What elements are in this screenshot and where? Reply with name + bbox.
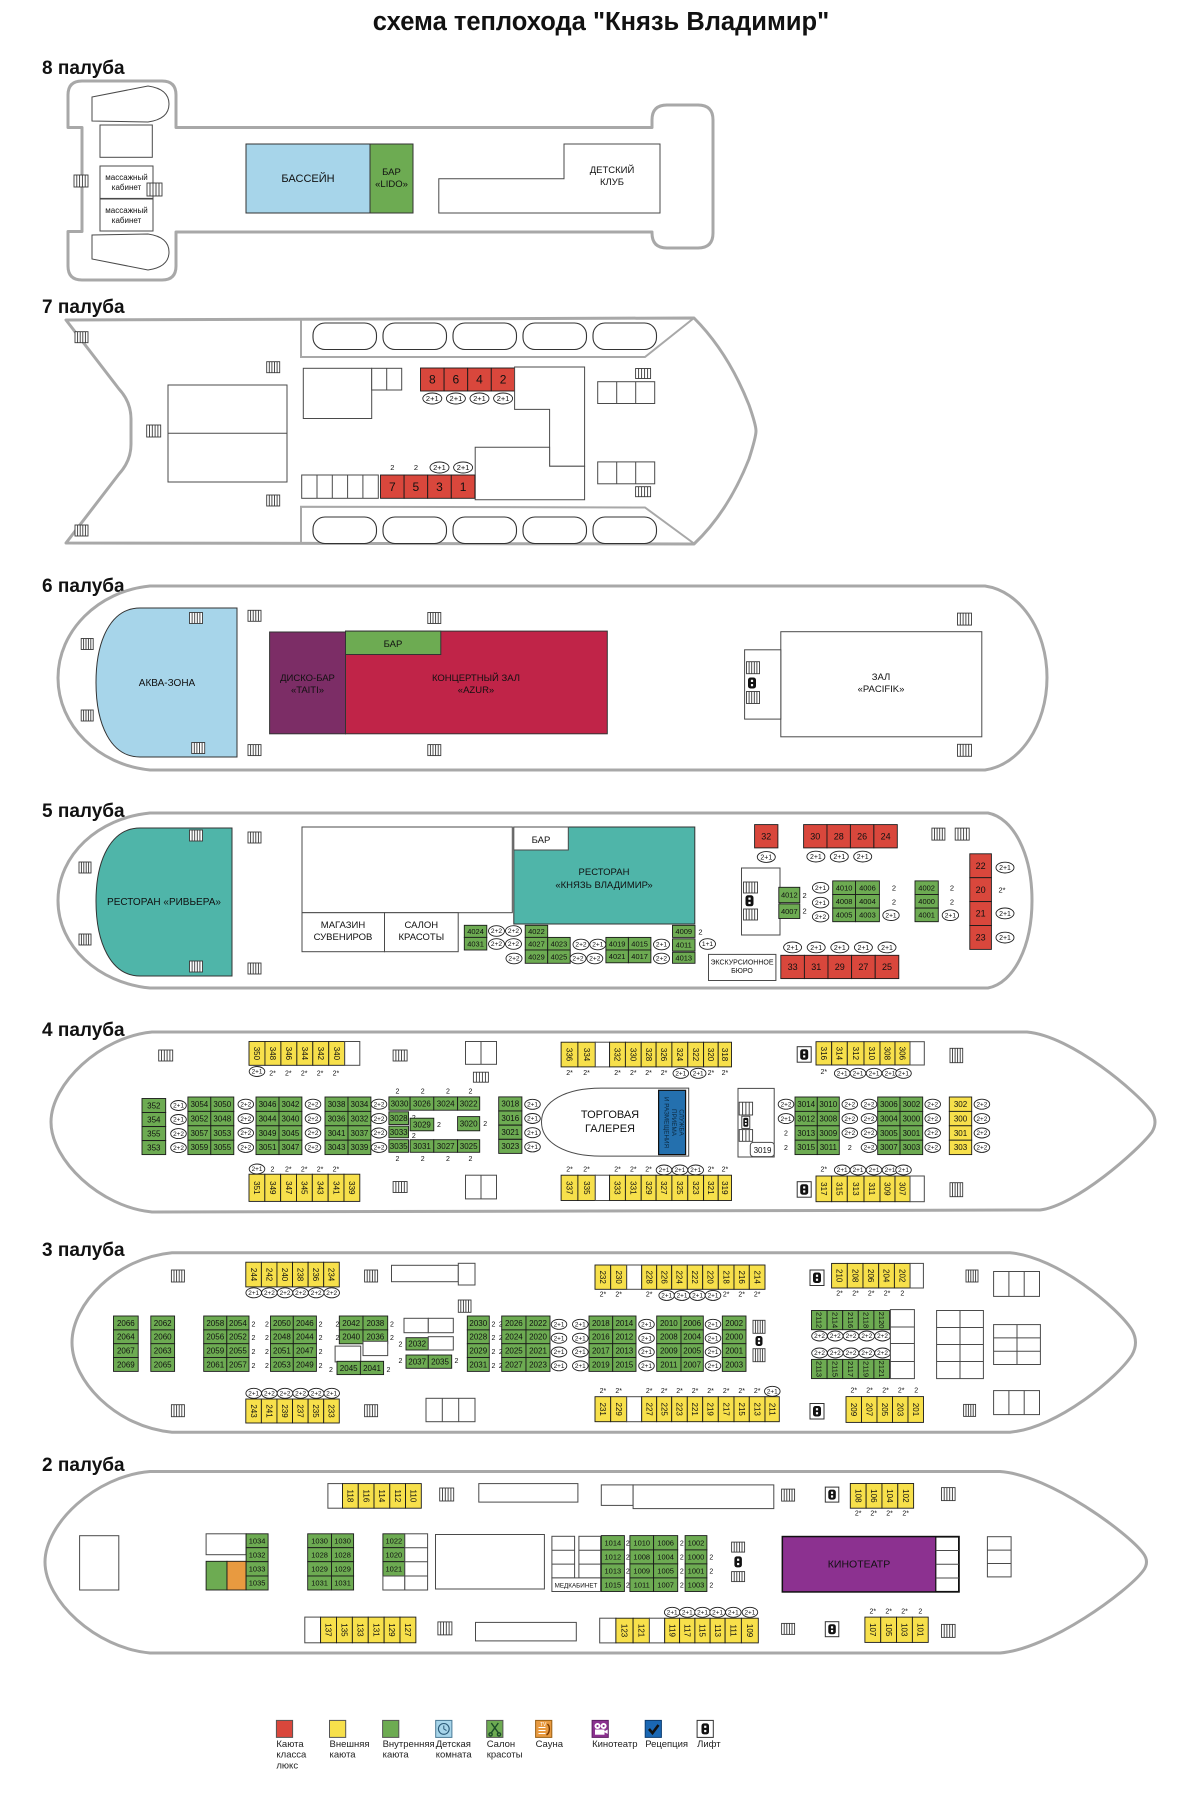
svg-text:133: 133: [356, 1623, 365, 1637]
svg-text:3010: 3010: [819, 1100, 837, 1109]
svg-text:2*: 2*: [708, 1070, 715, 1077]
svg-text:Внутренняя: Внутренняя: [383, 1739, 435, 1750]
svg-text:224: 224: [675, 1270, 684, 1284]
svg-text:3042: 3042: [282, 1100, 300, 1109]
svg-text:4009: 4009: [675, 927, 692, 936]
svg-text:1028: 1028: [311, 1550, 328, 1559]
svg-text:2114: 2114: [830, 1312, 839, 1328]
svg-text:27: 27: [858, 962, 868, 972]
svg-text:2+1: 2+1: [810, 854, 822, 861]
svg-text:2*: 2*: [692, 1388, 699, 1395]
svg-text:2+1: 2+1: [810, 945, 822, 952]
svg-text:2*: 2*: [882, 1388, 889, 1395]
svg-text:2+1: 2+1: [661, 1293, 672, 1300]
svg-text:6 палуба: 6 палуба: [42, 576, 125, 597]
svg-text:23: 23: [976, 933, 986, 943]
svg-text:2058: 2058: [206, 1319, 224, 1328]
svg-text:2: 2: [626, 1583, 630, 1590]
svg-text:2+1: 2+1: [881, 945, 893, 952]
svg-text:кабинет: кабинет: [112, 183, 142, 192]
svg-text:1008: 1008: [633, 1553, 650, 1562]
svg-text:2*: 2*: [285, 1167, 292, 1174]
svg-text:2: 2: [680, 1555, 684, 1562]
svg-text:2+1: 2+1: [575, 1335, 586, 1342]
svg-text:2000: 2000: [725, 1333, 743, 1342]
svg-text:220: 220: [706, 1270, 715, 1284]
svg-text:«КНЯЗЬ ВЛАДИМИР»: «КНЯЗЬ ВЛАДИМИР»: [555, 880, 652, 891]
svg-text:119: 119: [667, 1624, 676, 1637]
svg-text:243: 243: [249, 1404, 258, 1418]
svg-text:2+1: 2+1: [641, 1349, 652, 1356]
svg-text:2: 2: [252, 1321, 256, 1328]
svg-text:2: 2: [421, 1089, 425, 1096]
svg-text:2*: 2*: [820, 1069, 827, 1076]
svg-text:3000: 3000: [902, 1114, 920, 1123]
svg-text:326: 326: [659, 1048, 668, 1062]
svg-text:2*: 2*: [676, 1388, 683, 1395]
svg-text:3021: 3021: [501, 1128, 519, 1137]
svg-text:3057: 3057: [190, 1129, 208, 1138]
svg-text:БАР: БАР: [384, 639, 403, 650]
svg-text:316: 316: [819, 1047, 828, 1061]
svg-text:2+2: 2+2: [264, 1290, 275, 1297]
svg-text:2059: 2059: [206, 1346, 224, 1355]
svg-text:2+2: 2+2: [308, 1145, 319, 1152]
svg-text:2*: 2*: [852, 1291, 859, 1298]
svg-text:4: 4: [476, 373, 483, 387]
svg-text:114: 114: [377, 1490, 386, 1503]
svg-text:2: 2: [271, 1167, 275, 1174]
svg-text:2+1: 2+1: [885, 912, 897, 919]
svg-text:25: 25: [882, 962, 892, 972]
svg-text:2*: 2*: [723, 1292, 730, 1299]
svg-text:4024: 4024: [467, 927, 484, 936]
svg-text:331: 331: [629, 1181, 638, 1195]
svg-text:2+1: 2+1: [787, 945, 799, 952]
svg-text:107: 107: [868, 1623, 877, 1637]
svg-text:2+2: 2+2: [976, 1101, 987, 1108]
svg-text:2+1: 2+1: [554, 1363, 565, 1370]
svg-text:Салон: Салон: [487, 1739, 515, 1750]
svg-text:4001: 4001: [918, 911, 935, 920]
svg-text:комната: комната: [436, 1750, 473, 1761]
svg-text:РЕСТОРАН «РИВЬЕРА»: РЕСТОРАН «РИВЬЕРА»: [107, 897, 221, 908]
svg-text:3: 3: [436, 480, 443, 494]
svg-text:люкс: люкс: [276, 1760, 298, 1771]
svg-text:2+2: 2+2: [491, 941, 503, 948]
svg-text:320: 320: [706, 1048, 715, 1062]
svg-text:2: 2: [395, 1156, 399, 1163]
svg-text:4029: 4029: [528, 952, 545, 961]
svg-text:2: 2: [414, 463, 418, 472]
svg-text:3023: 3023: [501, 1142, 519, 1151]
svg-text:32: 32: [761, 831, 771, 841]
svg-text:2+1: 2+1: [815, 900, 827, 907]
svg-text:3034: 3034: [351, 1100, 369, 1109]
svg-text:2+1: 2+1: [641, 1321, 652, 1328]
svg-text:1029: 1029: [311, 1564, 328, 1573]
svg-text:2+1: 2+1: [659, 1167, 670, 1174]
svg-text:2063: 2063: [154, 1346, 172, 1355]
svg-text:3047: 3047: [282, 1143, 300, 1152]
svg-text:И РАЗМЕЩЕНИЯ: И РАЗМЕЩЕНИЯ: [662, 1097, 669, 1149]
svg-text:2: 2: [319, 1349, 323, 1356]
svg-text:3043: 3043: [328, 1143, 346, 1152]
svg-text:4007: 4007: [781, 907, 798, 916]
svg-text:321: 321: [706, 1181, 715, 1195]
svg-text:2+2: 2+2: [308, 1130, 319, 1137]
svg-text:353: 353: [147, 1143, 161, 1152]
svg-text:2*: 2*: [886, 1511, 893, 1518]
svg-text:КИНОТЕАТР: КИНОТЕАТР: [828, 1559, 890, 1571]
svg-text:3016: 3016: [501, 1114, 519, 1123]
svg-text:массажный: массажный: [105, 173, 147, 182]
svg-text:2+2: 2+2: [864, 1145, 875, 1152]
svg-text:2: 2: [319, 1335, 323, 1342]
svg-text:ДЕТСКИЙ: ДЕТСКИЙ: [590, 164, 635, 176]
svg-text:КОНЦЕРТНЫЙ ЗАЛ: КОНЦЕРТНЫЙ ЗАЛ: [432, 672, 520, 684]
svg-text:2+1: 2+1: [667, 1609, 678, 1616]
svg-text:Детская: Детская: [436, 1739, 471, 1750]
svg-text:355: 355: [147, 1129, 161, 1138]
svg-text:3032: 3032: [351, 1114, 369, 1123]
svg-text:2: 2: [680, 1569, 684, 1576]
svg-text:2016: 2016: [592, 1333, 610, 1342]
svg-text:2010: 2010: [660, 1319, 678, 1328]
svg-text:3037: 3037: [351, 1129, 369, 1138]
svg-text:330: 330: [629, 1048, 638, 1062]
svg-text:3041: 3041: [328, 1129, 346, 1138]
svg-text:7 палуба: 7 палуба: [42, 297, 125, 318]
svg-text:2057: 2057: [229, 1360, 247, 1369]
svg-text:2: 2: [319, 1321, 323, 1328]
svg-text:2053: 2053: [273, 1360, 291, 1369]
svg-text:2*: 2*: [615, 1292, 622, 1299]
svg-text:3006: 3006: [880, 1100, 898, 1109]
svg-text:4004: 4004: [859, 897, 876, 906]
svg-text:2*: 2*: [898, 1388, 905, 1395]
svg-text:2+1: 2+1: [834, 945, 846, 952]
svg-text:2+1: 2+1: [712, 1609, 723, 1616]
svg-text:3031: 3031: [413, 1142, 431, 1151]
svg-text:2021: 2021: [529, 1346, 547, 1355]
svg-text:127: 127: [403, 1623, 412, 1637]
svg-text:3005: 3005: [880, 1129, 898, 1138]
svg-text:235: 235: [311, 1404, 320, 1418]
svg-text:2*: 2*: [836, 1291, 843, 1298]
svg-text:2+1: 2+1: [781, 1116, 792, 1123]
svg-text:2+1: 2+1: [527, 1101, 538, 1108]
svg-text:2+1: 2+1: [857, 854, 869, 861]
svg-text:2: 2: [395, 1089, 399, 1096]
svg-text:2+1: 2+1: [457, 463, 470, 472]
svg-text:2112: 2112: [815, 1312, 824, 1328]
svg-text:2+2: 2+2: [844, 1116, 855, 1123]
svg-text:2+1: 2+1: [869, 1070, 880, 1077]
svg-text:111: 111: [728, 1624, 737, 1637]
svg-text:2051: 2051: [273, 1346, 291, 1355]
svg-text:2+2: 2+2: [877, 1350, 888, 1357]
svg-text:2+1: 2+1: [760, 854, 772, 861]
svg-text:2017: 2017: [592, 1346, 610, 1355]
svg-text:2: 2: [265, 1335, 269, 1342]
svg-text:2*: 2*: [868, 1291, 875, 1298]
svg-text:2*: 2*: [583, 1167, 590, 1174]
svg-text:2: 2: [252, 1335, 256, 1342]
svg-text:348: 348: [268, 1047, 277, 1061]
svg-text:3053: 3053: [213, 1129, 231, 1138]
svg-text:5: 5: [413, 480, 420, 494]
svg-text:4006: 4006: [859, 883, 876, 892]
svg-text:2+1: 2+1: [885, 1167, 896, 1174]
svg-text:110: 110: [409, 1490, 418, 1503]
svg-text:2+2: 2+2: [280, 1390, 291, 1397]
svg-text:2+1: 2+1: [497, 394, 510, 403]
svg-text:2047: 2047: [296, 1346, 314, 1355]
svg-text:2+2: 2+2: [508, 941, 520, 948]
svg-text:1031: 1031: [334, 1579, 351, 1588]
svg-text:343: 343: [315, 1181, 324, 1195]
svg-text:342: 342: [316, 1047, 325, 1061]
svg-text:2+2: 2+2: [240, 1116, 251, 1123]
svg-text:1003: 1003: [688, 1580, 705, 1589]
svg-text:1009: 1009: [633, 1567, 650, 1576]
svg-text:2+1: 2+1: [554, 1349, 565, 1356]
svg-text:2: 2: [390, 463, 394, 472]
svg-text:1011: 1011: [634, 1580, 650, 1589]
svg-text:2+2: 2+2: [264, 1390, 275, 1397]
svg-text:2015: 2015: [615, 1360, 633, 1369]
svg-text:118: 118: [346, 1490, 355, 1503]
svg-text:208: 208: [850, 1269, 859, 1283]
svg-text:3 палуба: 3 палуба: [42, 1240, 125, 1261]
svg-text:121: 121: [636, 1624, 645, 1638]
svg-text:350: 350: [252, 1047, 261, 1061]
svg-text:«TAITI»: «TAITI»: [291, 685, 324, 696]
svg-text:2: 2: [390, 1335, 394, 1342]
svg-text:2+1: 2+1: [833, 854, 845, 861]
svg-text:2*: 2*: [850, 1388, 857, 1395]
svg-text:2*: 2*: [630, 1167, 637, 1174]
svg-text:1030: 1030: [311, 1536, 328, 1545]
svg-text:2: 2: [492, 1349, 496, 1356]
svg-text:2055: 2055: [229, 1346, 247, 1355]
svg-text:2+2: 2+2: [240, 1145, 251, 1152]
svg-text:2+1: 2+1: [682, 1609, 693, 1616]
svg-text:2+2: 2+2: [326, 1290, 337, 1297]
svg-text:2: 2: [680, 1541, 684, 1548]
svg-text:2*: 2*: [723, 1388, 730, 1395]
svg-text:4022: 4022: [528, 927, 545, 936]
svg-text:САЛОН: САЛОН: [404, 920, 438, 931]
svg-text:2+2: 2+2: [656, 956, 668, 963]
svg-text:129: 129: [387, 1623, 396, 1637]
svg-text:339: 339: [347, 1181, 356, 1195]
svg-text:324: 324: [675, 1048, 684, 1062]
svg-text:2045: 2045: [340, 1364, 358, 1373]
svg-text:4003: 4003: [859, 911, 876, 920]
svg-text:2: 2: [437, 1122, 441, 1129]
svg-text:БЮРО: БЮРО: [731, 968, 753, 975]
svg-text:2066: 2066: [117, 1319, 135, 1328]
svg-text:2*: 2*: [661, 1070, 668, 1077]
svg-text:2067: 2067: [117, 1346, 135, 1355]
svg-text:2+2: 2+2: [830, 1333, 841, 1340]
svg-text:2+1: 2+1: [837, 1070, 848, 1077]
svg-text:ПРИЕМА: ПРИЕМА: [670, 1109, 677, 1137]
svg-text:2+2: 2+2: [240, 1101, 251, 1108]
svg-text:2+1: 2+1: [708, 1335, 719, 1342]
svg-text:4008: 4008: [836, 897, 853, 906]
svg-text:2119: 2119: [861, 1361, 870, 1377]
svg-text:6: 6: [453, 373, 460, 387]
svg-text:349: 349: [268, 1181, 277, 1195]
svg-text:2+1: 2+1: [326, 1390, 337, 1397]
svg-text:2: 2: [784, 1131, 788, 1138]
svg-text:Кинотеатр: Кинотеатр: [592, 1739, 637, 1750]
svg-text:ЗАЛ: ЗАЛ: [872, 672, 891, 683]
svg-text:2046: 2046: [296, 1319, 314, 1328]
svg-text:2*: 2*: [615, 1388, 622, 1395]
svg-text:3039: 3039: [351, 1143, 369, 1152]
svg-text:2+1: 2+1: [641, 1363, 652, 1370]
svg-text:2+2: 2+2: [846, 1333, 857, 1340]
svg-text:2+1: 2+1: [554, 1335, 565, 1342]
svg-text:4000: 4000: [918, 897, 935, 906]
svg-text:8: 8: [429, 373, 436, 387]
svg-text:2: 2: [469, 1089, 473, 1096]
svg-text:2+1: 2+1: [999, 911, 1011, 918]
svg-text:1032: 1032: [249, 1550, 266, 1559]
svg-text:2*: 2*: [998, 886, 1005, 895]
svg-text:«LIDO»: «LIDO»: [375, 179, 408, 190]
svg-text:2*: 2*: [885, 1609, 892, 1616]
svg-text:313: 313: [851, 1182, 860, 1196]
svg-text:2+2: 2+2: [846, 1350, 857, 1357]
svg-text:2+2: 2+2: [240, 1130, 251, 1137]
svg-text:2+1: 2+1: [554, 1321, 565, 1328]
svg-text:229: 229: [614, 1403, 623, 1417]
svg-text:2004: 2004: [683, 1333, 701, 1342]
svg-text:3003: 3003: [902, 1143, 920, 1152]
svg-text:3012: 3012: [797, 1114, 815, 1123]
svg-text:2+1: 2+1: [767, 1388, 778, 1395]
svg-text:3002: 3002: [902, 1100, 920, 1109]
svg-text:2: 2: [709, 1569, 713, 1576]
svg-text:3001: 3001: [902, 1129, 920, 1138]
svg-text:3025: 3025: [460, 1142, 478, 1151]
svg-text:2*: 2*: [738, 1292, 745, 1299]
svg-text:2: 2: [483, 1121, 487, 1128]
svg-text:102: 102: [901, 1489, 910, 1503]
svg-text:2: 2: [500, 373, 507, 387]
svg-text:2025: 2025: [505, 1346, 523, 1355]
svg-text:2117: 2117: [846, 1361, 855, 1377]
svg-text:2: 2: [900, 1291, 904, 1298]
svg-text:БАССЕЙН: БАССЕЙН: [281, 172, 334, 185]
svg-text:2069: 2069: [117, 1360, 135, 1369]
svg-text:Внешняя: Внешняя: [330, 1739, 370, 1750]
svg-text:2+1: 2+1: [173, 1117, 184, 1124]
svg-text:352: 352: [147, 1101, 161, 1110]
svg-text:2*: 2*: [646, 1292, 653, 1299]
svg-text:1015: 1015: [605, 1580, 622, 1589]
svg-text:333: 333: [613, 1181, 622, 1195]
svg-text:2113: 2113: [815, 1361, 824, 1377]
svg-text:1031: 1031: [311, 1579, 328, 1588]
svg-text:323: 323: [691, 1181, 700, 1195]
svg-text:2019: 2019: [592, 1360, 610, 1369]
svg-text:3049: 3049: [259, 1129, 277, 1138]
svg-text:231: 231: [598, 1403, 607, 1417]
svg-text:2: 2: [387, 1367, 391, 1374]
svg-text:2+1: 2+1: [677, 1293, 688, 1300]
svg-text:3024: 3024: [437, 1099, 455, 1108]
svg-text:2*: 2*: [869, 1609, 876, 1616]
svg-text:4002: 4002: [918, 883, 935, 892]
svg-text:2: 2: [390, 1321, 394, 1328]
svg-text:31: 31: [811, 962, 821, 972]
svg-text:3027: 3027: [437, 1142, 455, 1151]
svg-text:2018: 2018: [592, 1319, 610, 1328]
svg-text:2044: 2044: [296, 1333, 314, 1342]
svg-text:21: 21: [976, 909, 986, 919]
svg-text:2029: 2029: [469, 1346, 487, 1355]
svg-text:2+2: 2+2: [589, 956, 601, 963]
svg-text:2+1: 2+1: [575, 1349, 586, 1356]
svg-text:2*: 2*: [645, 1070, 652, 1077]
svg-text:1021: 1021: [386, 1564, 403, 1573]
svg-text:2*: 2*: [333, 1167, 340, 1174]
svg-text:327: 327: [659, 1181, 668, 1195]
svg-text:301: 301: [954, 1129, 968, 1138]
svg-text:2+1: 2+1: [656, 942, 668, 949]
svg-text:230: 230: [614, 1270, 623, 1284]
svg-text:345: 345: [300, 1181, 309, 1195]
svg-text:2: 2: [950, 898, 954, 907]
svg-text:3048: 3048: [213, 1114, 231, 1123]
svg-text:2+2: 2+2: [295, 1390, 306, 1397]
svg-text:1033: 1033: [249, 1564, 266, 1573]
svg-text:2028: 2028: [469, 1333, 487, 1342]
svg-text:1030: 1030: [334, 1536, 351, 1545]
svg-text:2+2: 2+2: [374, 1145, 385, 1152]
svg-text:2+2: 2+2: [173, 1145, 184, 1152]
svg-text:303: 303: [954, 1143, 968, 1152]
svg-text:318: 318: [720, 1048, 729, 1062]
svg-text:2*: 2*: [754, 1388, 761, 1395]
svg-text:2+2: 2+2: [491, 928, 503, 935]
svg-text:2+1: 2+1: [692, 1293, 703, 1300]
svg-text:203: 203: [895, 1403, 904, 1417]
svg-text:2064: 2064: [117, 1333, 135, 1342]
svg-text:2+1: 2+1: [173, 1103, 184, 1110]
svg-text:КЛУБ: КЛУБ: [600, 177, 624, 188]
svg-text:300: 300: [954, 1114, 968, 1123]
svg-text:207: 207: [864, 1403, 873, 1417]
svg-text:113: 113: [713, 1624, 722, 1637]
svg-text:2038: 2038: [366, 1319, 384, 1328]
svg-text:2+1: 2+1: [575, 1321, 586, 1328]
svg-text:2+1: 2+1: [473, 394, 486, 403]
svg-text:2+2: 2+2: [308, 1101, 319, 1108]
svg-text:3013: 3013: [797, 1129, 815, 1138]
svg-text:232: 232: [598, 1270, 607, 1284]
svg-text:2*: 2*: [855, 1511, 862, 1518]
svg-text:МАГАЗИН: МАГАЗИН: [321, 920, 366, 931]
svg-text:2036: 2036: [366, 1333, 384, 1342]
svg-text:АКВА-ЗОНА: АКВА-ЗОНА: [139, 678, 196, 689]
